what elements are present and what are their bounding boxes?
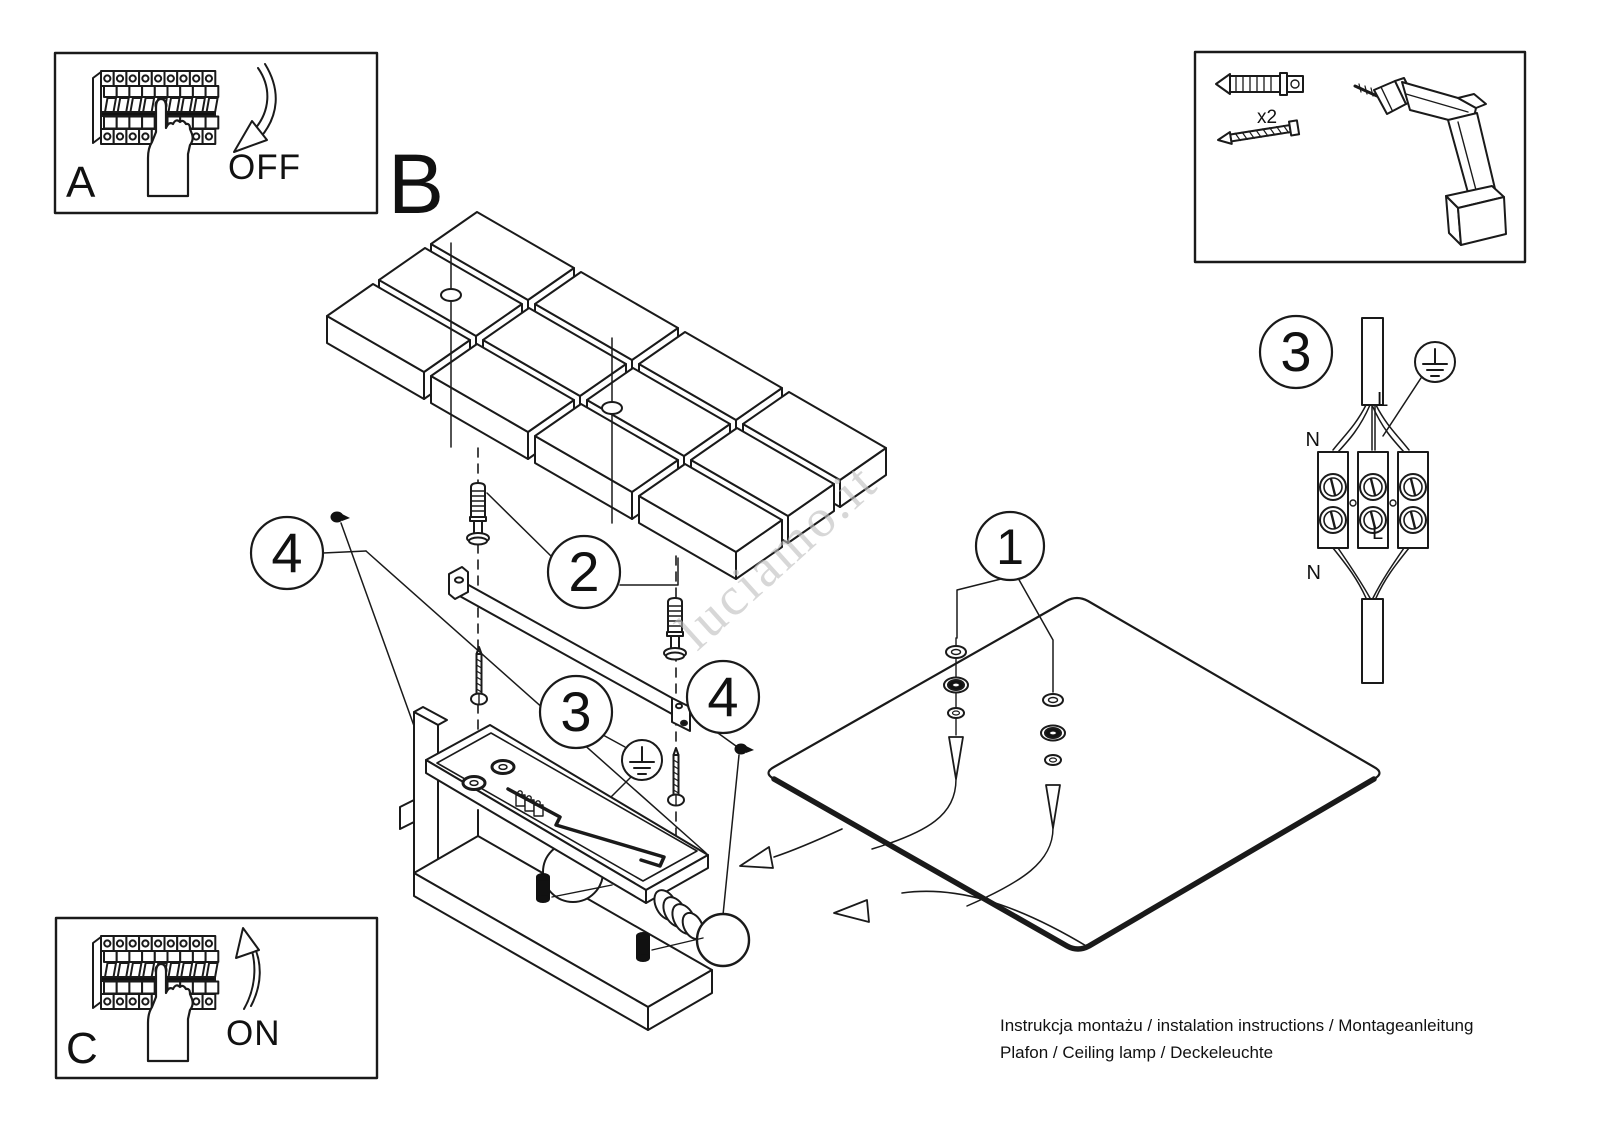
earth-symbol [622, 740, 662, 780]
marker-3-wiring-label: 3 [1280, 320, 1311, 383]
wire-label-n-bottom: N [1307, 562, 1321, 584]
wire-label-l-mid: L [1372, 522, 1383, 544]
wall-anchor-left [467, 483, 489, 545]
fixing-screw-right [735, 744, 755, 755]
marker-2-label: 2 [568, 540, 599, 603]
wall-plug-icon [1216, 73, 1303, 95]
wiring-diagram: N L L N [1306, 318, 1455, 683]
panel-c: C ON [56, 918, 377, 1078]
breaker-panel-off [93, 71, 218, 196]
off-label: OFF [228, 148, 301, 187]
tile-hole-2 [602, 402, 622, 414]
footer-line1: Instrukcja montażu / instalation instruc… [1000, 1016, 1473, 1035]
marker-1-label: 1 [996, 519, 1024, 575]
wire-label-n-top: N [1306, 429, 1320, 451]
light-bulb [697, 914, 749, 966]
footer-line2: Plafon / Ceiling lamp / Deckeleuchte [1000, 1043, 1273, 1062]
on-label: ON [226, 1014, 281, 1053]
glass-panel [769, 598, 1380, 949]
arrow-off [234, 64, 276, 152]
arrow-on [236, 928, 260, 1009]
tools-box: x2 [1195, 52, 1525, 262]
diagram-canvas: 2 3 4 4 1 3 [0, 0, 1600, 1131]
wire-label-l-top: L [1377, 389, 1388, 411]
panel-b-label: B [388, 137, 444, 231]
cable-sheath-bottom [1362, 599, 1383, 683]
panel-a: A OFF [55, 53, 377, 213]
fixing-screw-left [331, 512, 351, 523]
marker-3-label: 3 [560, 680, 591, 743]
instruction-sheet: 2 3 4 4 1 3 [0, 0, 1600, 1131]
panel-a-label: A [66, 158, 96, 207]
marker-4-left-label: 4 [271, 521, 302, 584]
tile-hole-1 [441, 289, 461, 301]
breaker-panel-on [93, 936, 218, 1061]
anchor-qty-label: x2 [1257, 107, 1277, 128]
earth-symbol-wiring [1415, 342, 1455, 382]
panel-c-label: C [66, 1024, 98, 1073]
marker-4-right-label: 4 [707, 665, 738, 728]
mount-screw-right [668, 748, 684, 806]
drill-icon [1355, 78, 1506, 245]
